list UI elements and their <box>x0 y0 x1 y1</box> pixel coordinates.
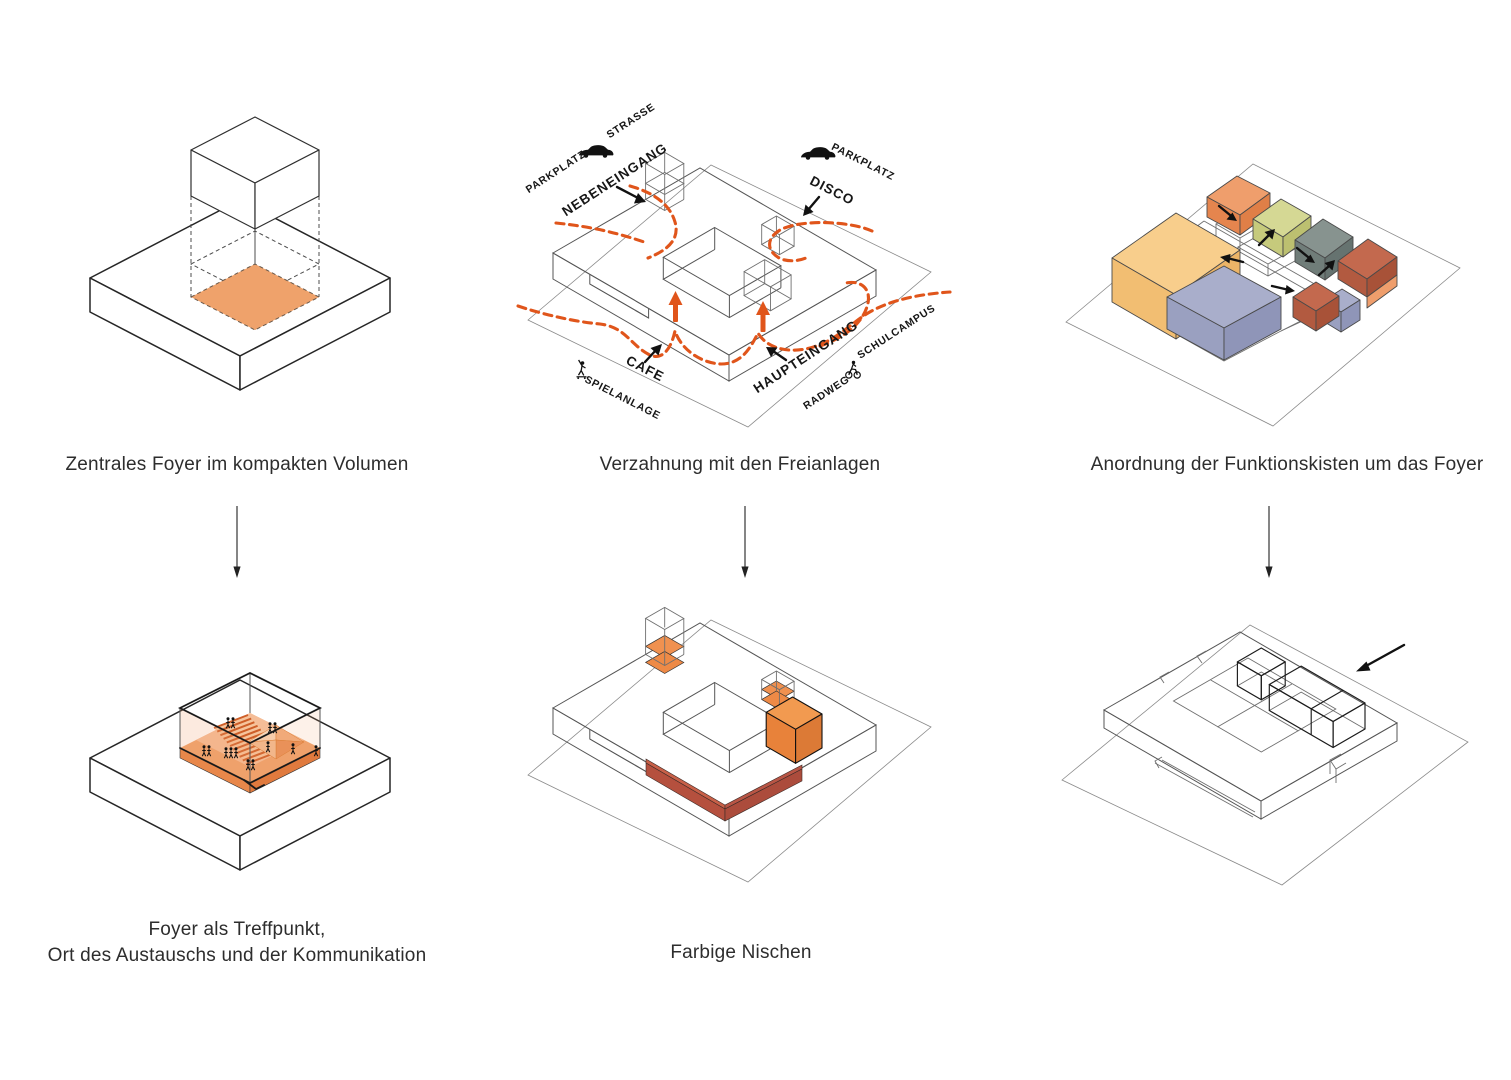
label-parkplatz-left: PARKPLATZ <box>524 148 589 196</box>
arrow-down-icon <box>738 506 754 582</box>
label-schulcampus: SCHULCAMPUS <box>855 302 937 361</box>
site-plane <box>1062 625 1468 885</box>
caption-panel4-line1: Foyer als Treffpunkt, <box>37 917 437 943</box>
niche-band <box>646 759 802 821</box>
diagram-disco-autonomie <box>1040 600 1500 930</box>
arrow-down-icon <box>230 506 246 582</box>
building-slab <box>1104 632 1397 819</box>
site-labels: PARKPLATZ STRASSE NEBENEINGANG DISCO PAR… <box>524 101 938 422</box>
cyclist-icon <box>846 361 861 378</box>
diagram-funktionskisten <box>1040 130 1500 440</box>
caption-panel1: Zentrales Foyer im kompakten Volumen <box>37 452 437 478</box>
caption-panel4: Foyer als Treffpunkt, Ort des Austauschs… <box>37 917 437 969</box>
floating-volume <box>191 117 319 229</box>
label-radweg: RADWEG <box>801 373 852 412</box>
caption-panel3: Anordnung der Funktionskisten um das Foy… <box>1087 452 1487 478</box>
disco-arrow <box>1356 645 1404 672</box>
caption-panel4-line2: Ort des Austauschs und der Kommunikation <box>37 943 437 969</box>
label-spielanlage: SPIELANLAGE <box>583 374 663 423</box>
arrow-down-icon <box>1262 506 1278 582</box>
caption-panel5: Farbige Nischen <box>541 940 941 966</box>
label-parkplatz-right: PARKPLATZ <box>829 141 896 183</box>
label-strasse: STRASSE <box>605 101 658 141</box>
disco-niche-box <box>762 216 794 255</box>
diagram-sheet: PARKPLATZ STRASSE NEBENEINGANG DISCO PAR… <box>0 0 1511 1080</box>
diagram-farbige-nischen <box>490 595 995 925</box>
niche-big-box <box>766 697 822 763</box>
diagram-verzahnung: PARKPLATZ STRASSE NEBENEINGANG DISCO PAR… <box>490 85 995 460</box>
caption-panel2: Verzahnung mit den Freianlagen <box>540 452 940 478</box>
haupteingang-notch-box <box>744 260 791 311</box>
diagram-zentrales-foyer <box>30 70 450 420</box>
diagram-foyer-treffpunkt <box>50 600 450 910</box>
skateboarder-icon <box>577 360 587 379</box>
label-cafe: CAFE <box>624 353 667 385</box>
label-arrows <box>617 187 819 362</box>
niche-tower <box>646 607 684 673</box>
